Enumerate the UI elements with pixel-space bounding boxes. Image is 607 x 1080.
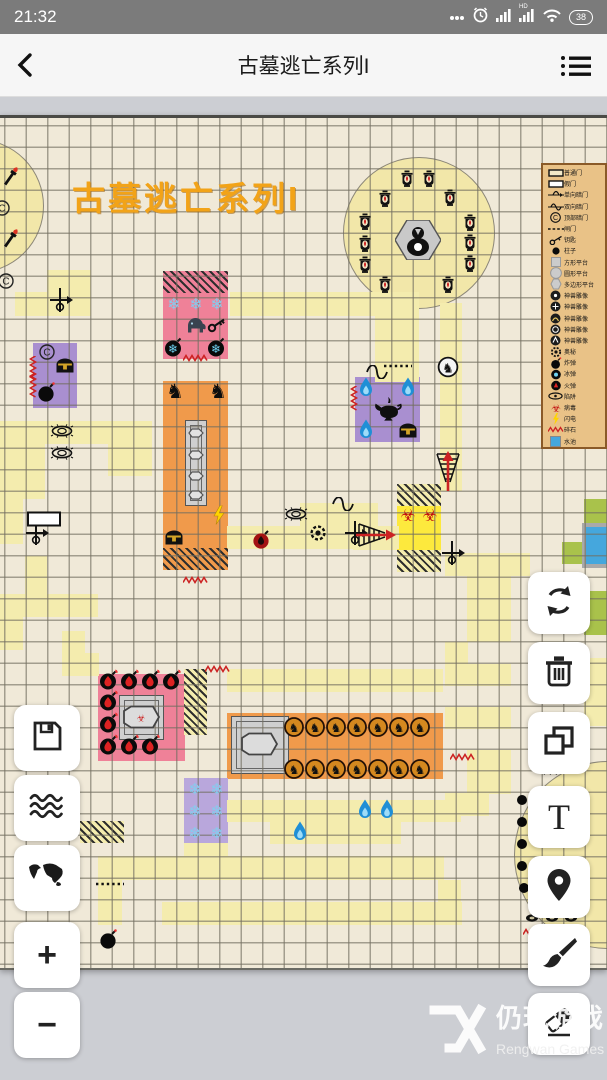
battery-icon: 38 <box>569 10 593 25</box>
status-bar: 21:32 HD 38 <box>0 0 607 34</box>
more-icon <box>449 8 465 26</box>
watermark-logo-icon <box>428 998 490 1063</box>
lantern-icon <box>442 277 455 294</box>
legend-item: 碎石 <box>543 424 605 435</box>
knight-statue-icon: ♞ <box>438 357 459 378</box>
map-canvas[interactable]: 古墓逃亡系列I 普通门假门单向暗门双向暗门C顶部暗门闸门钥匙柱子方形平台圆形平台… <box>0 115 607 970</box>
legend-item: C顶部暗门 <box>543 212 605 223</box>
waves-icon <box>28 791 66 826</box>
svg-text:♞: ♞ <box>415 721 426 735</box>
biohazard-icon: ☣ <box>399 506 417 524</box>
legend-item: ☣病毒 <box>543 402 605 413</box>
legend-item: 方形平台 <box>543 257 605 268</box>
legend-label: 双向暗门 <box>564 202 588 211</box>
lamp-statue-icon <box>372 397 402 421</box>
status-time: 21:32 <box>14 7 57 27</box>
legend-item: 柱子 <box>543 245 605 256</box>
gate-icon <box>96 882 124 886</box>
st4-legend-icon <box>547 324 564 335</box>
beast-statue-icon: ♞ <box>207 380 229 402</box>
legend-label: 神兽雕像 <box>564 302 588 311</box>
lantern-icon <box>379 191 392 208</box>
zigL-legend-icon <box>547 426 564 433</box>
map-tile <box>467 576 511 642</box>
copyright-icon: C <box>0 273 14 289</box>
legend-item: 火弹 <box>543 380 605 391</box>
ice-bomb-icon: ❄ <box>164 337 185 358</box>
knight-statue-icon: ♞ <box>326 717 346 737</box>
map-title: 古墓逃亡系列I <box>72 172 300 220</box>
svg-text:❄: ❄ <box>188 826 201 843</box>
rubble-icon <box>450 753 476 762</box>
map-border <box>0 968 607 970</box>
legend-label: 假门 <box>564 179 576 188</box>
key-icon <box>208 318 227 333</box>
map-tile <box>445 642 468 686</box>
treasure-chest-icon <box>164 529 185 546</box>
map-tile <box>0 499 23 544</box>
map-tile <box>230 292 378 316</box>
legend-label: 普通门 <box>564 168 582 177</box>
map-tile <box>227 669 443 692</box>
gate-icon <box>384 364 412 368</box>
bomb-icon <box>99 929 119 949</box>
eraser-button[interactable] <box>528 993 590 1055</box>
bioL-legend-icon: ☣ <box>547 402 564 414</box>
legend-label: 陷阱 <box>564 392 576 401</box>
knight-statue-icon: ♞ <box>347 717 367 737</box>
svg-text:☣: ☣ <box>422 506 437 524</box>
svg-text:❄: ❄ <box>210 804 223 821</box>
ladder-up-icon <box>432 450 464 492</box>
list-menu-icon[interactable] <box>561 54 591 83</box>
map-room <box>562 542 584 564</box>
pillar-icon <box>517 861 528 872</box>
svg-text:C: C <box>43 348 50 359</box>
copy-button[interactable] <box>528 712 590 774</box>
map-tile <box>227 800 461 822</box>
snowflake-icon: ❄ <box>186 824 204 842</box>
knight-statue-icon: ♞ <box>284 717 304 737</box>
st3-legend-icon <box>547 313 564 324</box>
zoom-out-button[interactable]: − <box>14 992 80 1058</box>
knight-statue-icon: ♞ <box>284 759 304 779</box>
svg-text:♞: ♞ <box>166 381 184 402</box>
svg-text:❄: ❄ <box>210 297 223 314</box>
copyright-icon: C <box>0 200 10 216</box>
cC-legend-icon: C <box>547 212 564 223</box>
delete-icon <box>542 653 576 694</box>
delete-button[interactable] <box>528 642 590 704</box>
svg-text:♞: ♞ <box>352 763 363 777</box>
lantern-icon <box>464 215 477 232</box>
svg-text:♞: ♞ <box>442 361 454 376</box>
knight-statue-icon: ♞ <box>389 759 409 779</box>
lantern-icon <box>464 256 477 273</box>
legend-label: 神兽雕像 <box>564 325 588 334</box>
hatched-tile <box>163 548 228 570</box>
knight-statue-icon: ♞ <box>326 759 346 779</box>
brush-icon <box>540 934 578 977</box>
copyright-icon: C <box>39 344 55 360</box>
dot-legend-icon <box>547 247 564 255</box>
snowflake-icon: ❄ <box>186 802 204 820</box>
fire-bomb-icon <box>162 670 183 691</box>
svg-text:♞: ♞ <box>310 763 321 777</box>
elephant-statue-icon <box>184 316 206 335</box>
map-room <box>586 527 607 564</box>
svg-text:♞: ♞ <box>394 721 405 735</box>
mechanism-icon <box>308 523 328 543</box>
fire-bomb-icon <box>120 670 141 691</box>
lantern-icon <box>444 190 457 207</box>
fire-bomb-icon <box>99 691 120 712</box>
location-icon <box>544 867 574 908</box>
blue-flame-icon <box>359 378 374 397</box>
svg-text:♞: ♞ <box>352 721 363 735</box>
one-way-door-icon <box>438 539 466 567</box>
legend-label: 碎石 <box>564 425 576 434</box>
hatched-tile <box>184 669 207 735</box>
blue-flame-icon <box>359 420 374 439</box>
lantern-icon <box>359 236 372 253</box>
bombL-legend-icon <box>547 357 564 369</box>
legend-item: 闪电 <box>543 413 605 424</box>
snowflake-icon: ❄ <box>208 780 226 798</box>
legend-item: 奥秘 <box>543 346 605 357</box>
lantern-icon <box>464 235 477 252</box>
blue-flame-icon <box>380 800 395 819</box>
svg-text:☣: ☣ <box>137 714 146 725</box>
legend-item: 炸弹 <box>543 357 605 368</box>
legend-item: 普通门 <box>543 167 605 178</box>
fire-bomb-icon <box>99 713 120 734</box>
map-tile <box>445 707 511 729</box>
legend-item: 钥匙 <box>543 234 605 245</box>
lantern-icon <box>401 171 414 188</box>
fire-bomb-icon <box>141 735 162 756</box>
legend-label: 神兽雕像 <box>564 291 588 300</box>
svg-text:❄: ❄ <box>210 826 223 843</box>
fire-bomb-icon <box>120 735 141 756</box>
map-tile <box>0 594 98 617</box>
svg-text:C: C <box>553 215 558 222</box>
biohazard-icon: ☣ <box>421 506 439 524</box>
map-tile <box>98 880 122 925</box>
knight-statue-icon: ♞ <box>410 717 430 737</box>
rotate-icon <box>540 583 578 624</box>
legend-label: 病毒 <box>564 403 576 412</box>
svg-text:❄: ❄ <box>211 342 221 356</box>
header: 古墓逃亡系列I <box>0 34 607 97</box>
blue-flame-icon <box>293 822 308 841</box>
legend-label: 水池 <box>564 437 576 446</box>
svg-text:❄: ❄ <box>210 782 223 799</box>
legend-item: 闸门 <box>543 223 605 234</box>
sq-legend-icon <box>547 257 564 267</box>
coffin-icon: ☣ <box>120 704 162 731</box>
legend-label: 闪电 <box>564 414 576 423</box>
st1-legend-icon <box>547 290 564 301</box>
svg-text:☣: ☣ <box>400 506 415 524</box>
snowflake-icon: ❄ <box>208 295 226 313</box>
legend-label: 冰弹 <box>564 369 576 378</box>
snowflake-icon: ❄ <box>165 295 183 313</box>
legend-item: 双向暗门 <box>543 201 605 212</box>
pillar-icon <box>517 817 528 828</box>
legend-item: 冰弹 <box>543 368 605 379</box>
legend-label: 神兽雕像 <box>564 336 588 345</box>
hatched-tile <box>397 550 441 572</box>
map-tile <box>0 617 23 650</box>
torch-icon <box>0 227 20 251</box>
fbombL-legend-icon <box>547 379 564 391</box>
legend-label: 顶部暗门 <box>564 213 588 222</box>
sc1-legend-icon <box>547 190 564 199</box>
legend-item: 单向暗门 <box>543 189 605 200</box>
keyL-legend-icon <box>547 235 564 245</box>
save-button[interactable] <box>14 705 80 771</box>
map-tile <box>0 444 45 499</box>
treasure-chest-icon <box>55 357 76 374</box>
sc2-legend-icon <box>547 202 564 211</box>
legend-label: 闸门 <box>564 224 576 233</box>
poly-legend-icon <box>547 278 564 290</box>
svg-text:♞: ♞ <box>373 763 384 777</box>
legend-item: 神兽雕像 <box>543 335 605 346</box>
text-glyph: T <box>548 796 570 838</box>
legend-item: 圆形平台 <box>543 268 605 279</box>
fire-bomb-icon <box>99 735 120 756</box>
rubble-icon <box>205 665 231 674</box>
page-title: 古墓逃亡系列I <box>0 50 607 80</box>
rubble-icon <box>183 576 209 585</box>
doorO-legend-icon <box>547 169 564 177</box>
st5-legend-icon <box>547 335 564 346</box>
svg-text:♞: ♞ <box>331 763 342 777</box>
lantern-icon <box>359 214 372 231</box>
map-tile <box>108 444 152 476</box>
knight-statue-icon: ♞ <box>410 759 430 779</box>
beast-statue-icon: ♞ <box>164 380 186 402</box>
legend-item: 神兽雕像 <box>543 312 605 323</box>
lightning-icon <box>213 506 226 525</box>
door-icon <box>27 512 61 527</box>
svg-text:❄: ❄ <box>188 804 201 821</box>
plinth-icon <box>188 471 204 481</box>
zoom-out-glyph: − <box>37 1006 57 1045</box>
svg-text:♞: ♞ <box>310 721 321 735</box>
legend-label: 奥秘 <box>564 347 576 356</box>
pillar-icon <box>517 839 528 850</box>
legend-item: 假门 <box>543 178 605 189</box>
legend-label: 多边形平台 <box>564 280 594 289</box>
blue-flame-icon <box>401 378 416 397</box>
map-tile <box>162 902 462 925</box>
hatched-tile <box>80 821 124 843</box>
legend-label: 火弹 <box>564 381 576 390</box>
app-screen: 21:32 HD 38 古墓逃亡系列I 古墓逃亡系列I 普通门假门单向暗门双向暗… <box>0 0 607 1080</box>
save-icon <box>29 718 65 759</box>
legend-item: 水池 <box>543 436 605 447</box>
snowflake-icon: ❄ <box>187 295 205 313</box>
knight-statue-icon: ♞ <box>389 717 409 737</box>
bomb-icon <box>37 382 57 402</box>
legend-label: 圆形平台 <box>564 269 588 278</box>
map-tile <box>25 556 47 596</box>
svg-text:♞: ♞ <box>331 721 342 735</box>
lantern-icon <box>379 277 392 294</box>
waves-button[interactable] <box>14 775 80 841</box>
world-button[interactable] <box>14 845 80 911</box>
world-icon <box>27 862 67 895</box>
plinth-icon <box>188 490 204 500</box>
legend-item: 神兽雕像 <box>543 324 605 335</box>
rubble-icon <box>350 386 359 412</box>
knight-statue-icon: ♞ <box>347 759 367 779</box>
legend-item: 多边形平台 <box>543 279 605 290</box>
snowflake-icon: ❄ <box>208 802 226 820</box>
hatched-tile <box>163 271 228 293</box>
text-button[interactable]: T <box>528 786 590 848</box>
one-way-door-icon <box>46 286 74 314</box>
plinth-icon <box>188 428 204 438</box>
legend-label: 单向暗门 <box>564 190 588 199</box>
knight-statue-icon: ♞ <box>368 717 388 737</box>
secret-door-icon <box>332 497 354 511</box>
snowflake-icon: ❄ <box>208 824 226 842</box>
alarm-icon <box>472 6 489 28</box>
blue-flame-icon <box>358 800 373 819</box>
svg-text:♞: ♞ <box>394 763 405 777</box>
treasure-chest-icon <box>398 422 419 439</box>
map-tile <box>77 653 99 676</box>
red-bomb-icon <box>252 529 272 549</box>
trap-icon <box>284 507 308 521</box>
eraser-icon <box>541 1005 577 1044</box>
map-tile <box>98 856 444 880</box>
zoom-in-button[interactable]: + <box>14 922 80 988</box>
map-tile <box>270 822 401 844</box>
dash-legend-icon <box>547 227 564 231</box>
rubble-icon <box>183 354 209 363</box>
svg-text:♞: ♞ <box>289 721 300 735</box>
brush-button[interactable] <box>528 924 590 986</box>
st2-legend-icon <box>547 301 564 312</box>
gearL-legend-icon <box>547 346 564 358</box>
location-button[interactable] <box>528 856 590 918</box>
svg-text:❄: ❄ <box>188 782 201 799</box>
svg-text:♞: ♞ <box>415 763 426 777</box>
legend-label: 方形平台 <box>564 258 588 267</box>
legend-label: 柱子 <box>564 246 576 255</box>
lantern-icon <box>359 257 372 274</box>
legend-item: 陷阱 <box>543 391 605 402</box>
knight-statue-icon: ♞ <box>305 717 325 737</box>
plinth-icon <box>188 450 204 460</box>
rotate-button[interactable] <box>528 572 590 634</box>
legend-item: 神兽雕像 <box>543 301 605 312</box>
legend-label: 神兽雕像 <box>564 314 588 323</box>
legend-panel: 普通门假门单向暗门双向暗门C顶部暗门闸门钥匙柱子方形平台圆形平台多边形平台神兽雕… <box>541 163 607 449</box>
ice-bomb-icon: ❄ <box>207 337 228 358</box>
signal-icon <box>496 8 512 27</box>
wifi-icon <box>542 7 562 27</box>
circ-legend-icon <box>547 267 564 279</box>
hd-signal-icon: HD <box>519 8 535 27</box>
fire-bomb-icon <box>141 670 162 691</box>
svg-text:❄: ❄ <box>168 342 178 356</box>
svg-text:♞: ♞ <box>373 721 384 735</box>
waterL-legend-icon <box>547 436 564 447</box>
map-tile <box>467 664 511 686</box>
pillar-icon <box>517 795 528 806</box>
ibombL-legend-icon <box>547 368 564 380</box>
copy-icon <box>541 723 577 764</box>
svg-text:♞: ♞ <box>289 763 300 777</box>
svg-text:♞: ♞ <box>209 381 227 402</box>
lantern-icon <box>423 171 436 188</box>
zoom-in-glyph: + <box>37 936 57 975</box>
svg-text:C: C <box>2 277 9 288</box>
map-tile <box>0 421 152 444</box>
legend-item: 神兽雕像 <box>543 290 605 301</box>
legend-label: 炸弹 <box>564 358 576 367</box>
legend-label: 钥匙 <box>564 235 576 244</box>
ladder-right-icon <box>355 519 397 551</box>
svg-text:C: C <box>0 204 6 215</box>
svg-text:❄: ❄ <box>167 297 180 314</box>
knight-statue-icon: ♞ <box>368 759 388 779</box>
boltL-legend-icon <box>547 413 564 425</box>
torch-icon <box>0 165 20 189</box>
svg-text:❄: ❄ <box>189 297 202 314</box>
knight-statue-icon: ♞ <box>305 759 325 779</box>
statue-icon <box>395 220 441 260</box>
coffin-icon <box>238 731 280 758</box>
eyeL-legend-icon <box>547 392 564 400</box>
snowflake-icon: ❄ <box>186 780 204 798</box>
trap-icon <box>50 424 74 438</box>
trap-icon <box>50 446 74 460</box>
doorF-legend-icon <box>547 180 564 188</box>
fire-bomb-icon <box>99 670 120 691</box>
